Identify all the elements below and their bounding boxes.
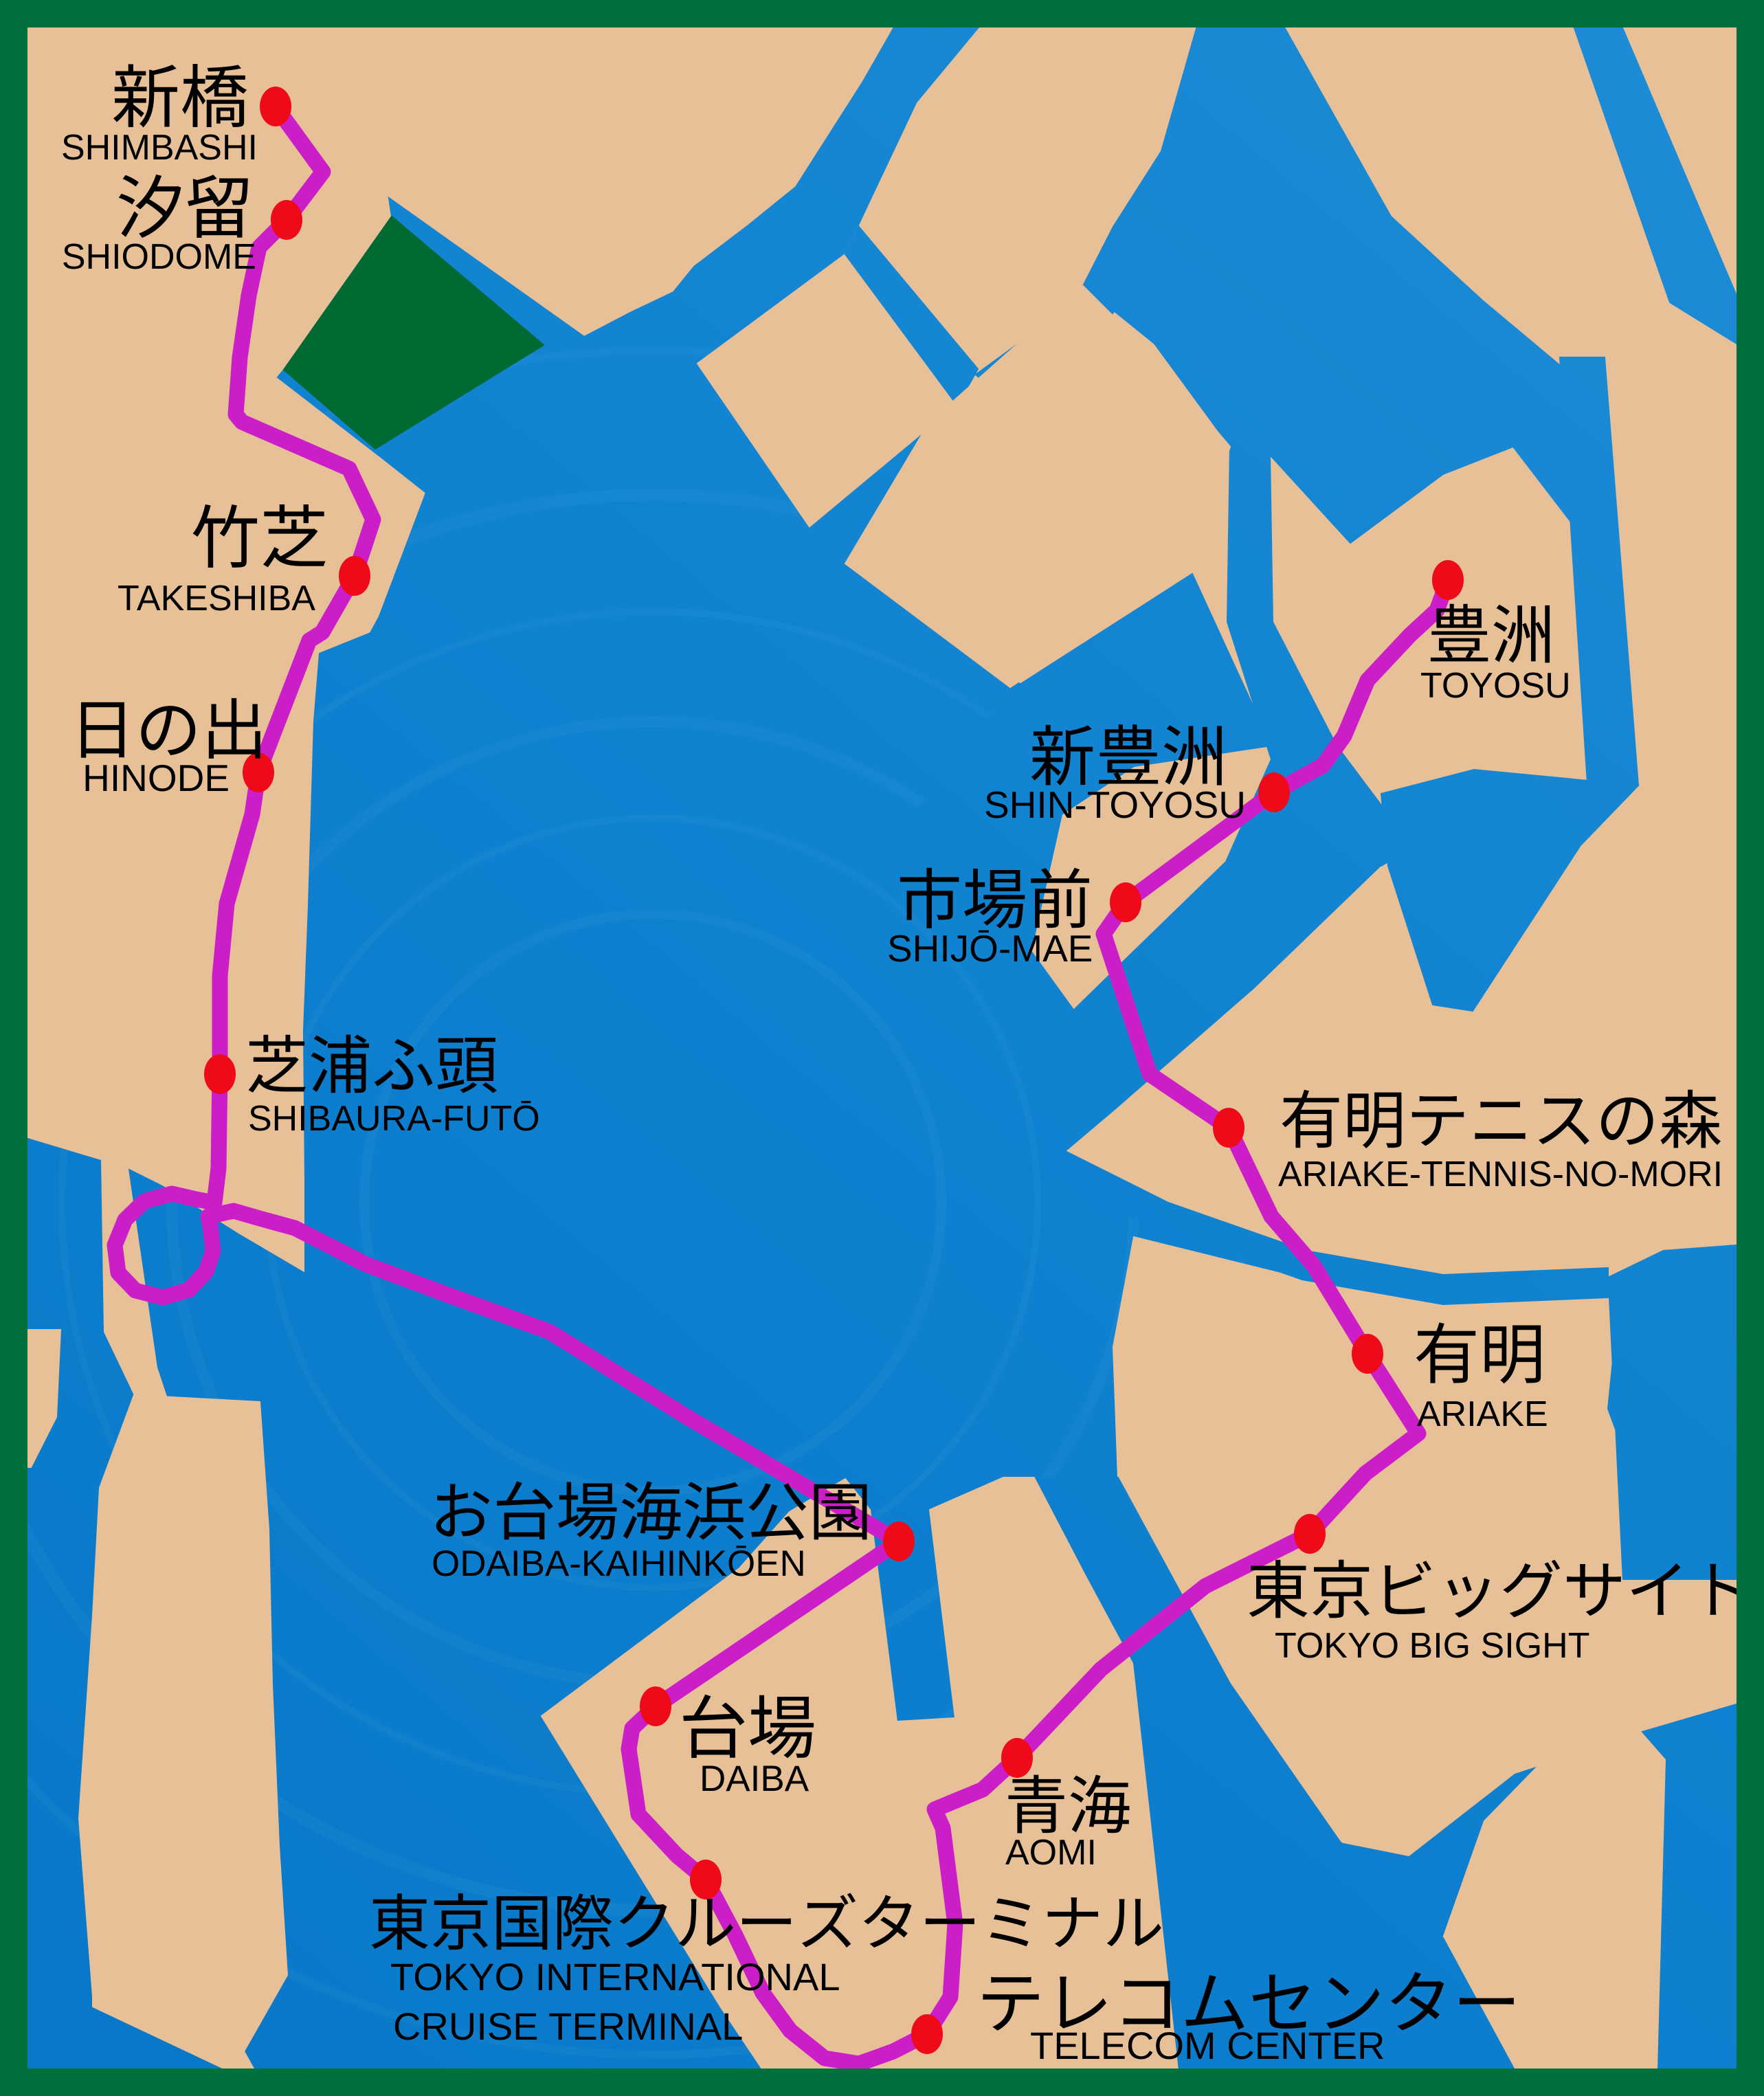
svg-text:SHIJŌ-MAE: SHIJŌ-MAE bbox=[887, 927, 1093, 970]
svg-text:CRUISE TERMINAL: CRUISE TERMINAL bbox=[393, 2005, 743, 2048]
svg-text:SHIODOME: SHIODOME bbox=[62, 237, 256, 277]
svg-text:TAKESHIBA: TAKESHIBA bbox=[118, 579, 315, 618]
svg-text:ARIAKE: ARIAKE bbox=[1417, 1394, 1548, 1434]
svg-text:TELECOM CENTER: TELECOM CENTER bbox=[1030, 2024, 1385, 2067]
svg-text:AOMI: AOMI bbox=[1005, 1833, 1097, 1873]
svg-text:TOKYO INTERNATIONAL: TOKYO INTERNATIONAL bbox=[390, 1955, 840, 1998]
svg-text:TOYOSU: TOYOSU bbox=[1420, 666, 1571, 706]
svg-text:HINODE: HINODE bbox=[82, 757, 230, 799]
svg-text:ARIAKE-TENNIS-NO-MORI: ARIAKE-TENNIS-NO-MORI bbox=[1278, 1155, 1723, 1194]
svg-text:DAIBA: DAIBA bbox=[700, 1759, 810, 1799]
svg-text:SHIMBASHI: SHIMBASHI bbox=[61, 128, 258, 168]
svg-text:TOKYO BIG SIGHT: TOKYO BIG SIGHT bbox=[1275, 1626, 1589, 1666]
svg-text:ODAIBA-KAIHINKŌEN: ODAIBA-KAIHINKŌEN bbox=[432, 1543, 806, 1584]
svg-text:SHIN-TOYOSU: SHIN-TOYOSU bbox=[984, 783, 1246, 826]
svg-text:SHIBAURA-FUTŌ: SHIBAURA-FUTŌ bbox=[248, 1099, 540, 1139]
